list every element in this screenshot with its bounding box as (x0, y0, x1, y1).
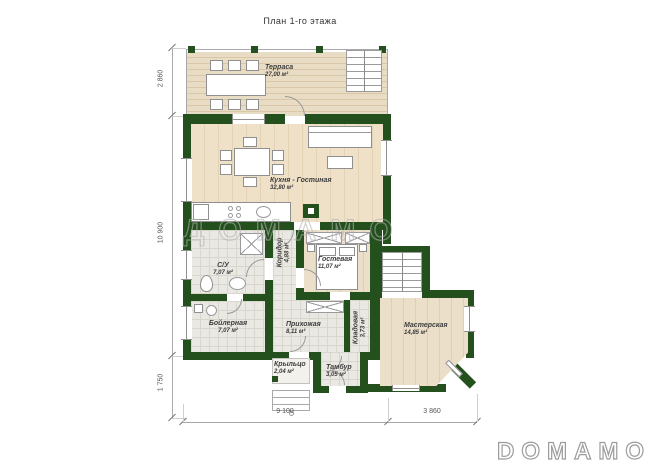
terrace-edge (186, 49, 187, 116)
brand-logo: DOMAMO (497, 438, 651, 466)
extension-line (388, 398, 389, 422)
dining-table (234, 148, 270, 176)
boiler-equipment (194, 304, 203, 313)
chair (220, 164, 232, 175)
terrace-chair (246, 99, 259, 110)
room-label-storage: Кладовая 3,73 м² (353, 298, 368, 358)
chair (272, 150, 284, 161)
dimension-value: 3 860 (402, 408, 462, 415)
wall-segment (243, 294, 265, 301)
terrace-edge (387, 49, 388, 116)
window-symbol (392, 385, 420, 391)
boiler-symbol (206, 305, 217, 316)
wall-segment (265, 280, 273, 352)
floor-plan-page: План 1-го этажа (0, 0, 660, 470)
extension-line (172, 48, 186, 49)
watermark-text: ДОМАМО (183, 214, 407, 248)
chair (243, 137, 257, 147)
room-label-bathroom: С/У 7,07 м² (208, 262, 238, 277)
chair (272, 164, 284, 175)
terrace-chair (246, 60, 259, 71)
stove-burner (228, 206, 233, 211)
wall-segment (346, 386, 368, 393)
wall-segment (422, 246, 430, 298)
window-symbol (232, 114, 265, 124)
chair (243, 177, 257, 187)
room-label-kitchen-living: Кухня - Гостиная 32,80 м² (270, 177, 332, 192)
terrace-staircase-symbol (346, 50, 382, 92)
room-label-hallway: Прихожая 8,11 м² (286, 321, 321, 336)
terrace-table (206, 74, 266, 96)
chair (220, 150, 232, 161)
window-symbol (181, 250, 192, 280)
dimension-value: 1 750 (158, 363, 165, 403)
dimension-line (183, 422, 477, 423)
bathroom-sink (229, 277, 246, 290)
extension-line (477, 394, 478, 422)
pillow (319, 247, 336, 256)
terrace-chair (210, 60, 223, 71)
extension-line (183, 404, 184, 422)
terrace-post (316, 46, 323, 53)
coffee-table (327, 156, 353, 169)
room-label-porch: Крыльцо 2,04 м² (274, 361, 306, 376)
porch-post (272, 376, 278, 382)
staircase-symbol (382, 252, 422, 292)
dimension-line (172, 48, 173, 418)
sofa (308, 126, 372, 148)
wall-segment (265, 114, 285, 124)
window-symbol (464, 306, 475, 332)
window-symbol (381, 140, 392, 176)
extension-line (172, 116, 183, 117)
wall-segment (305, 114, 390, 124)
room-label-workshop: Мастерская 14,85 м² (404, 322, 448, 337)
wall-segment (313, 386, 329, 393)
terrace-post (251, 46, 258, 53)
dimension-value: 2 860 (158, 59, 165, 99)
window-symbol (181, 158, 192, 202)
window-symbol (181, 306, 192, 340)
wardrobe-symbol (306, 301, 344, 313)
terrace-chair (228, 99, 241, 110)
terrace-chair (210, 99, 223, 110)
terrace-post (188, 46, 195, 53)
dimension-value: 9 100 (255, 408, 315, 415)
page-title: План 1-го этажа (210, 16, 390, 26)
wall-segment (304, 292, 330, 300)
room-label-boiler: Бойлерная 7,07 м² (203, 320, 253, 335)
pillow (339, 247, 355, 256)
room-label-guest: Гостевая 11,07 м² (318, 256, 352, 271)
terrace-chair (228, 60, 241, 71)
extension-line (172, 356, 183, 357)
stove-burner (236, 206, 241, 211)
wall-segment (191, 294, 227, 301)
toilet (200, 275, 213, 292)
dimension-value: 10 900 (158, 211, 165, 255)
room-label-vestibule: Тамбур 3,05 м² (326, 364, 352, 379)
room-label-terrace: Терраса 27,00 м² (265, 64, 293, 79)
